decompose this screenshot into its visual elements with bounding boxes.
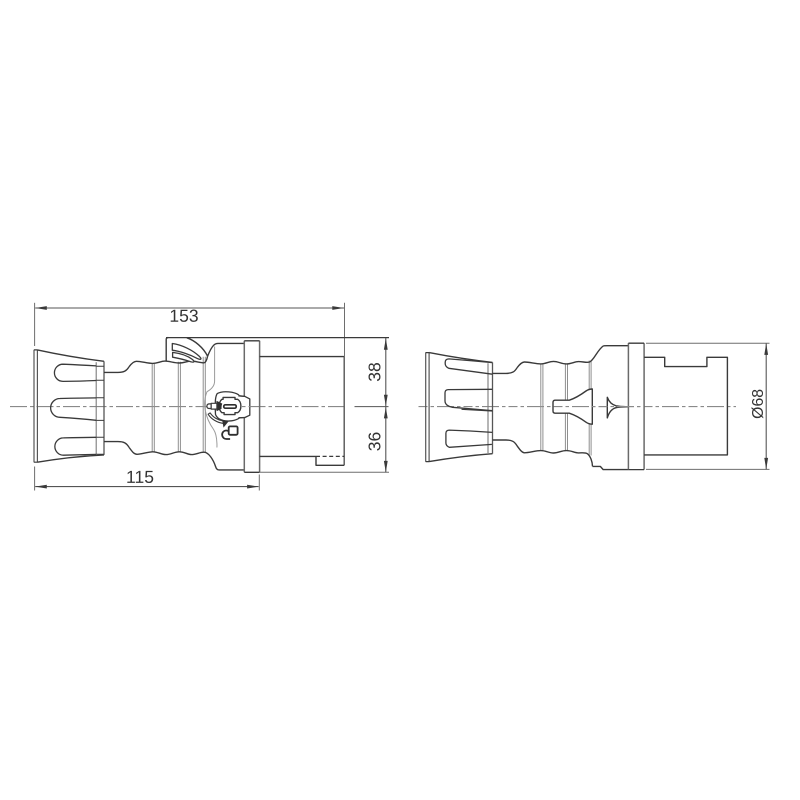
svg-text:Ø68: Ø68 — [750, 389, 767, 419]
svg-text:115: 115 — [126, 467, 154, 487]
svg-text:36: 36 — [365, 432, 385, 451]
svg-text:38: 38 — [365, 362, 385, 381]
svg-text:153: 153 — [169, 306, 198, 326]
